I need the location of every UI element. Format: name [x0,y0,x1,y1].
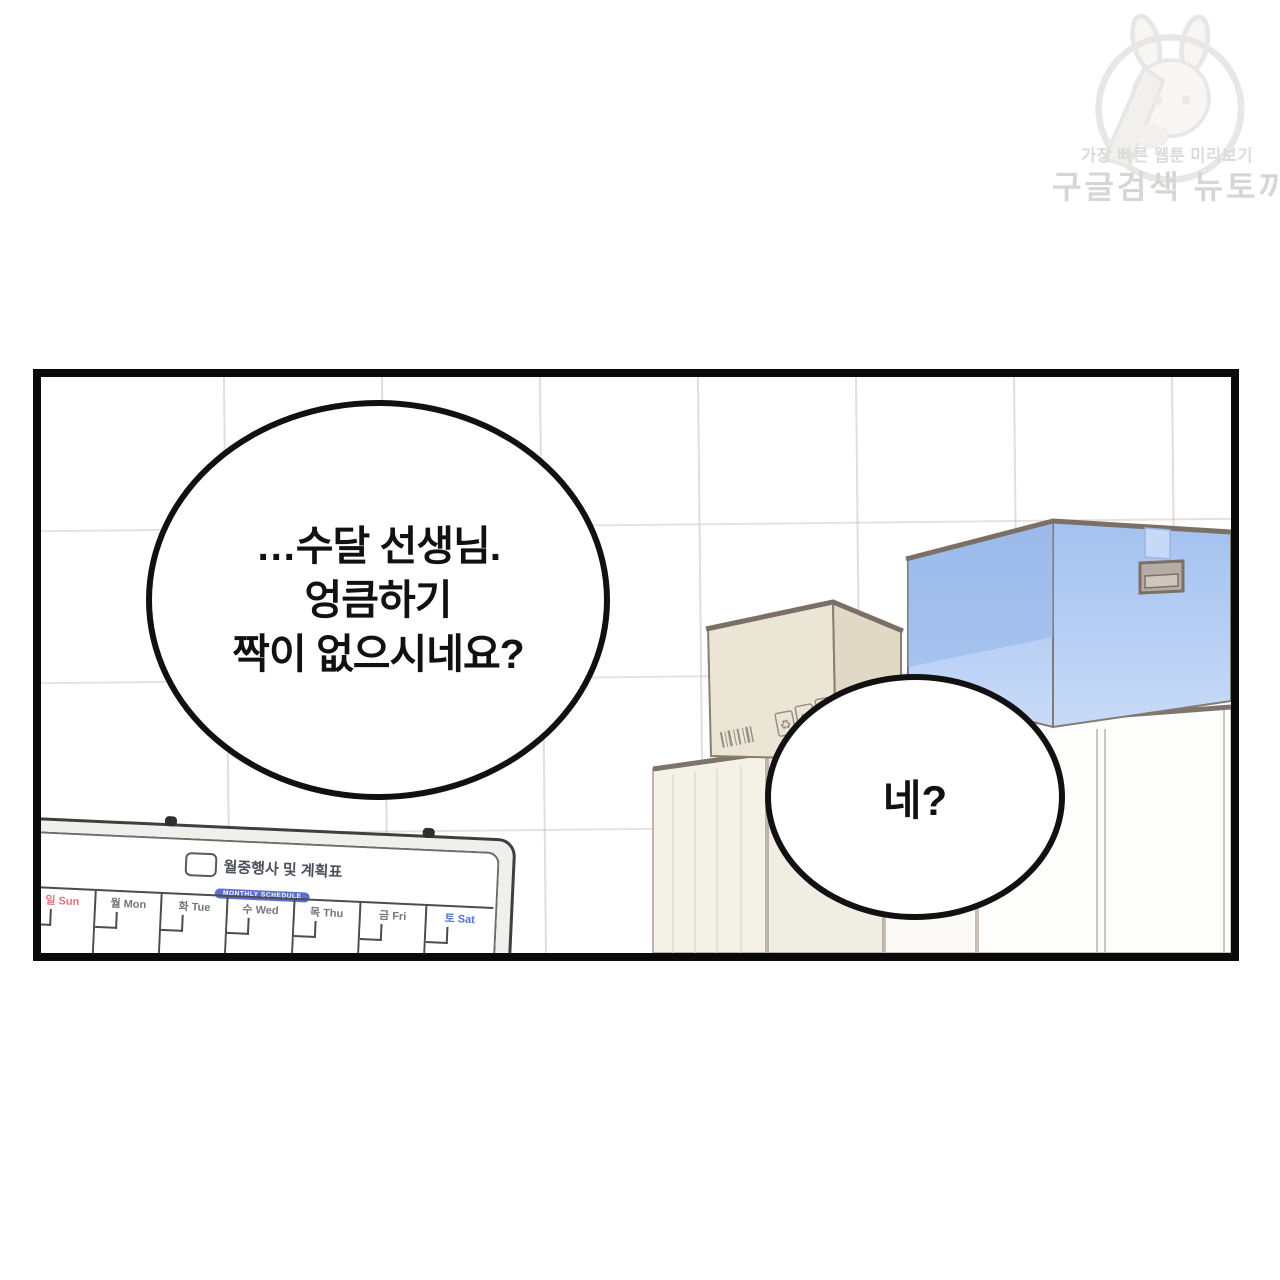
watermark-tagline: 가장 빠른 웹툰 미리보기 [1062,142,1272,166]
webtoon-page: 가장 빠른 웹툰 미리보기 구글검색 뉴토끼 [0,0,1280,1280]
speech-bubble-main: …수달 선생님. 엉큼하기 짝이 없으시네요? [146,400,610,800]
calendar-cell [424,926,493,961]
date-number-tab [359,923,382,941]
date-number-tab [293,920,316,938]
watermark-brand: 구글검색 뉴토끼 [1052,162,1280,208]
speech-bubble-reply: 네? [765,674,1065,920]
calendar-cell [93,911,162,961]
site-watermark: 가장 빠른 웹툰 미리보기 구글검색 뉴토끼 [1062,12,1272,212]
shipping-label [1140,561,1183,593]
date-number-tab [161,914,184,932]
speech-text: …수달 선생님. 엉큼하기 짝이 없으시네요? [232,519,523,681]
date-number-tab [33,908,52,926]
calendar-cell [358,923,427,961]
whiteboard-surface: 월중행사 및 계획표 MONTHLY SCHEDULE 일 Sun 월 Mon … [33,831,500,961]
mount-clip [422,828,434,839]
calendar-cell [292,920,361,961]
date-number-tab [95,911,118,929]
calendar-cell [159,914,228,961]
mount-clip [165,816,177,827]
calendar-cell [226,917,295,961]
month-box [184,852,217,877]
calendar-title: 월중행사 및 계획표 [223,855,343,881]
comic-panel: ♻ ⇈ 월중행사 및 계획표 MONTHLY SCHEDULE 일 Sun 월 … [33,369,1239,961]
date-number-tab [227,917,250,935]
date-number-tab [426,926,449,944]
speech-text: 네? [883,767,947,828]
box-flap-detail [1145,528,1170,559]
whiteboard-calendar: 월중행사 및 계획표 MONTHLY SCHEDULE 일 Sun 월 Mon … [33,817,517,961]
calendar-cell [33,908,96,961]
rabbit-mascot-icon [1074,12,1264,207]
